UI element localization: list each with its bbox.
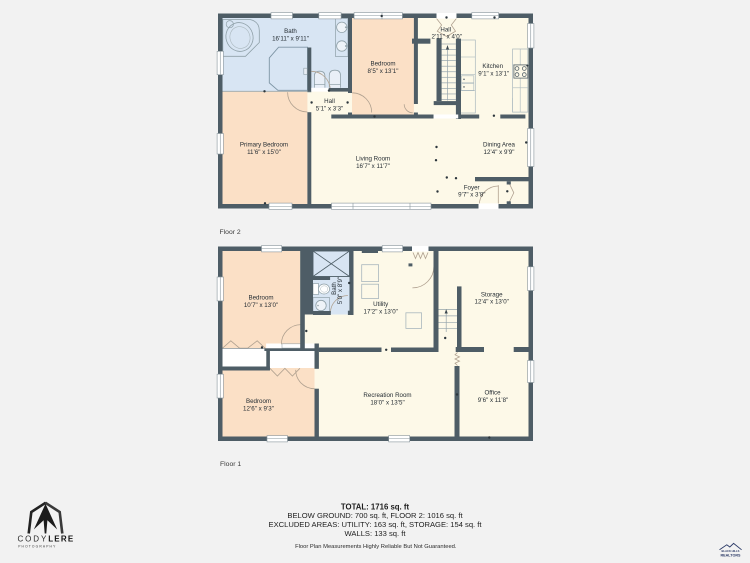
svg-text:Floor 1: Floor 1	[220, 461, 241, 468]
svg-text:Bath: Bath	[284, 28, 297, 35]
svg-text:12’6" x 9’3": 12’6" x 9’3"	[243, 405, 274, 412]
svg-text:CODYLERE: CODYLERE	[18, 535, 75, 544]
svg-text:16’11" x 9’11": 16’11" x 9’11"	[272, 35, 309, 42]
svg-text:17’2" x 13’0": 17’2" x 13’0"	[364, 308, 398, 315]
svg-text:12’4" x 9’9": 12’4" x 9’9"	[484, 149, 515, 156]
svg-text:11’6" x 15’0": 11’6" x 15’0"	[247, 149, 281, 156]
svg-text:Bedroom: Bedroom	[248, 295, 273, 302]
svg-text:18’0" x 13’5": 18’0" x 13’5"	[370, 399, 404, 406]
svg-text:BELOW GROUND: 700 sq. ft, FLOO: BELOW GROUND: 700 sq. ft, FLOOR 2: 1016 …	[287, 511, 463, 520]
svg-text:Kitchen: Kitchen	[482, 63, 503, 70]
svg-text:9’6" x 11’8": 9’6" x 11’8"	[478, 397, 508, 404]
svg-text:Bedroom: Bedroom	[246, 398, 271, 405]
svg-text:Primary Bedroom: Primary Bedroom	[240, 142, 288, 149]
svg-text:16’7" x 11’7": 16’7" x 11’7"	[356, 163, 390, 170]
svg-text:5’1" x 3’3": 5’1" x 3’3"	[316, 105, 343, 112]
svg-text:Floor Plan Measurements Highly: Floor Plan Measurements Highly Reliable …	[295, 544, 457, 550]
svg-text:Bedroom: Bedroom	[370, 61, 395, 68]
svg-text:PHOTOGRAPHY: PHOTOGRAPHY	[18, 544, 56, 548]
svg-text:Foyer: Foyer	[464, 184, 480, 191]
svg-text:8’5" x 13’1": 8’5" x 13’1"	[368, 68, 399, 75]
svg-text:10’7" x 13’0": 10’7" x 13’0"	[244, 302, 278, 309]
svg-text:Utility: Utility	[373, 301, 389, 308]
svg-text:Hall: Hall	[440, 26, 451, 33]
svg-text:Living Room: Living Room	[356, 156, 390, 163]
svg-text:2’11" x 4’0": 2’11" x 4’0"	[431, 34, 461, 41]
svg-text:9’7" x 3’8": 9’7" x 3’8"	[458, 191, 485, 198]
svg-text:Recreation Room: Recreation Room	[363, 392, 411, 399]
svg-text:5’0" x 8’9": 5’0" x 8’9"	[337, 277, 344, 304]
svg-text:Office: Office	[484, 390, 501, 397]
svg-text:Hall: Hall	[324, 98, 335, 105]
svg-text:WALLS: 133 sq. ft: WALLS: 133 sq. ft	[345, 529, 407, 538]
svg-text:Floor 2: Floor 2	[220, 229, 241, 236]
svg-text:Storage: Storage	[481, 291, 503, 298]
svg-text:Dining Area: Dining Area	[483, 142, 516, 149]
svg-text:12’4" x 13’0": 12’4" x 13’0"	[475, 299, 509, 306]
svg-text:REALTORS: REALTORS	[721, 553, 741, 557]
svg-text:9’1" x 13’1": 9’1" x 13’1"	[478, 70, 509, 77]
